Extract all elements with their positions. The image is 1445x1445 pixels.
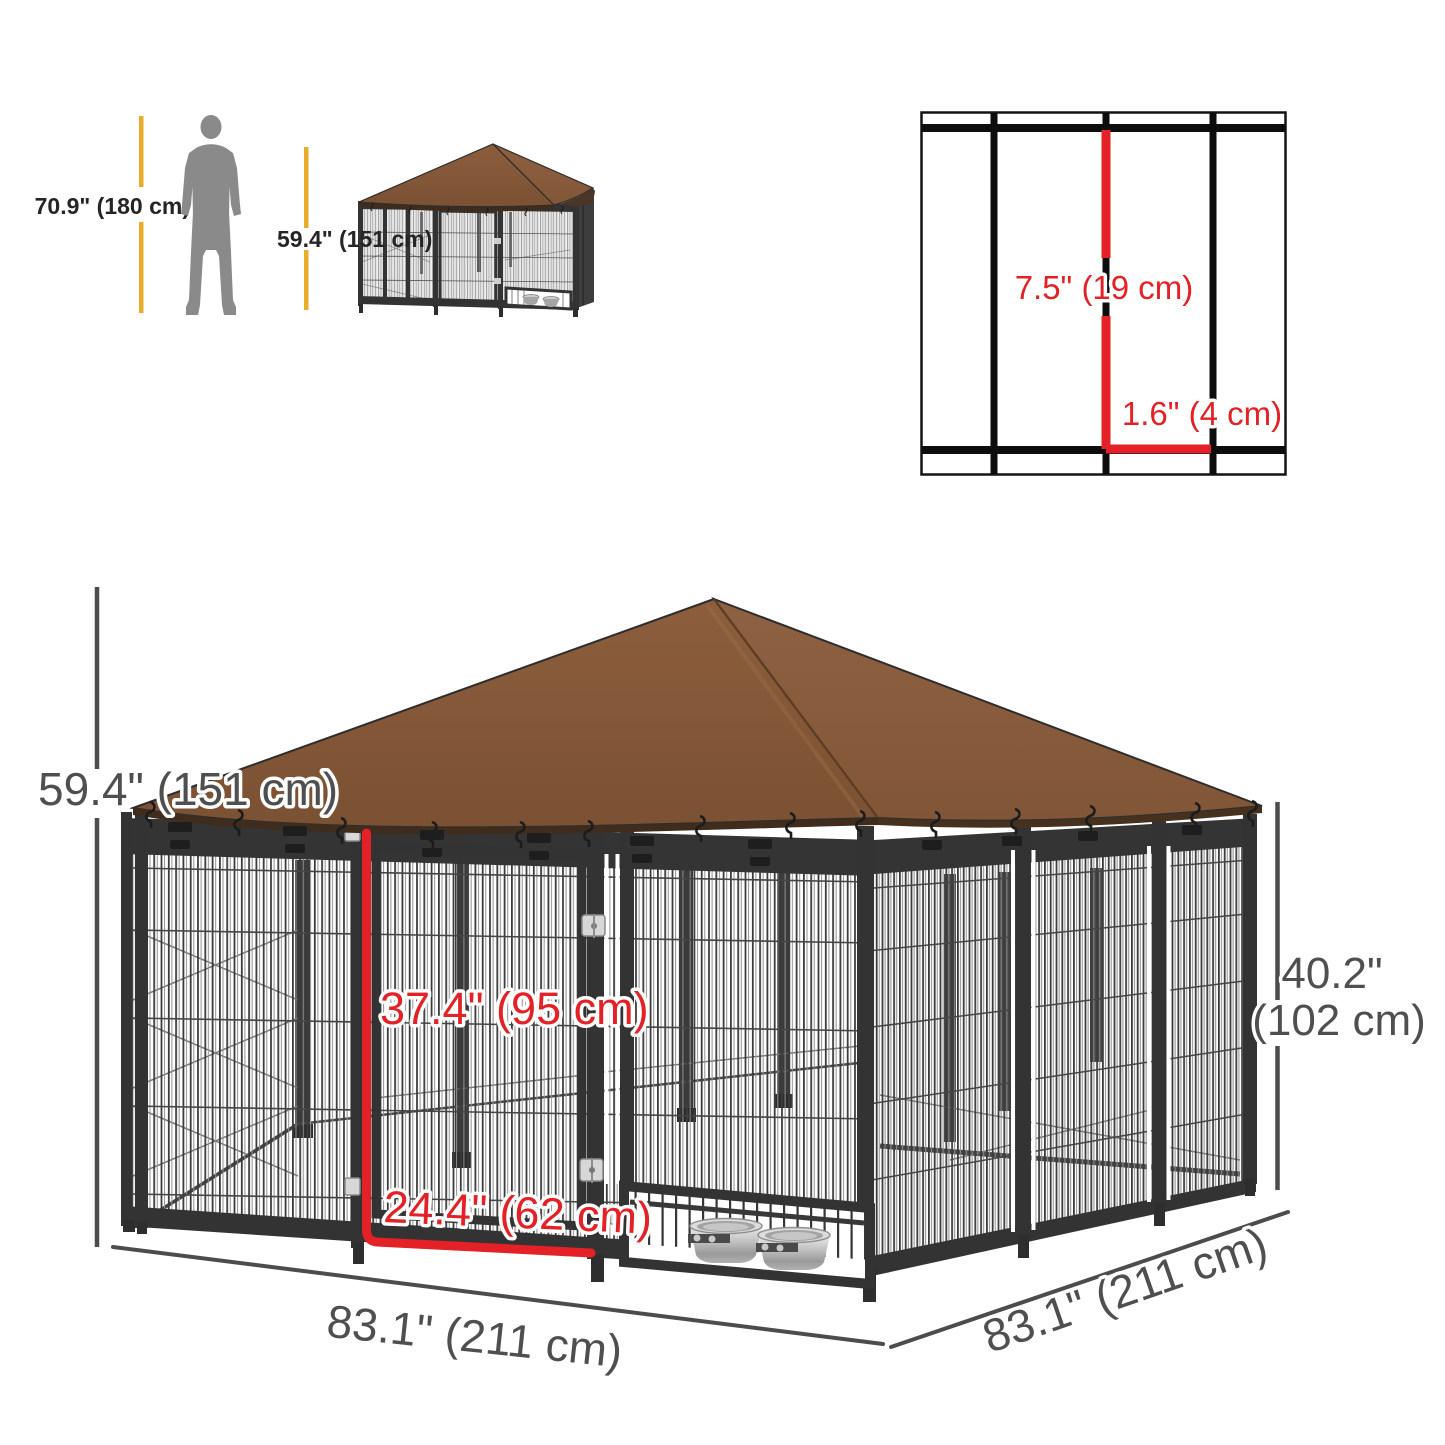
svg-text:7.5" (19 cm): 7.5" (19 cm) xyxy=(1015,269,1194,306)
svg-text:59.4" (151 cm): 59.4" (151 cm) xyxy=(277,226,432,252)
svg-text:70.9" (180 cm): 70.9" (180 cm) xyxy=(35,193,190,219)
svg-text:1.6" (4 cm): 1.6" (4 cm) xyxy=(1122,395,1282,432)
svg-text:40.2": 40.2" xyxy=(1281,949,1382,998)
svg-text:(102 cm): (102 cm) xyxy=(1252,996,1426,1045)
svg-text:59.4" (151 cm): 59.4" (151 cm) xyxy=(38,763,338,815)
svg-text:37.4" (95 cm): 37.4" (95 cm) xyxy=(380,983,649,1034)
